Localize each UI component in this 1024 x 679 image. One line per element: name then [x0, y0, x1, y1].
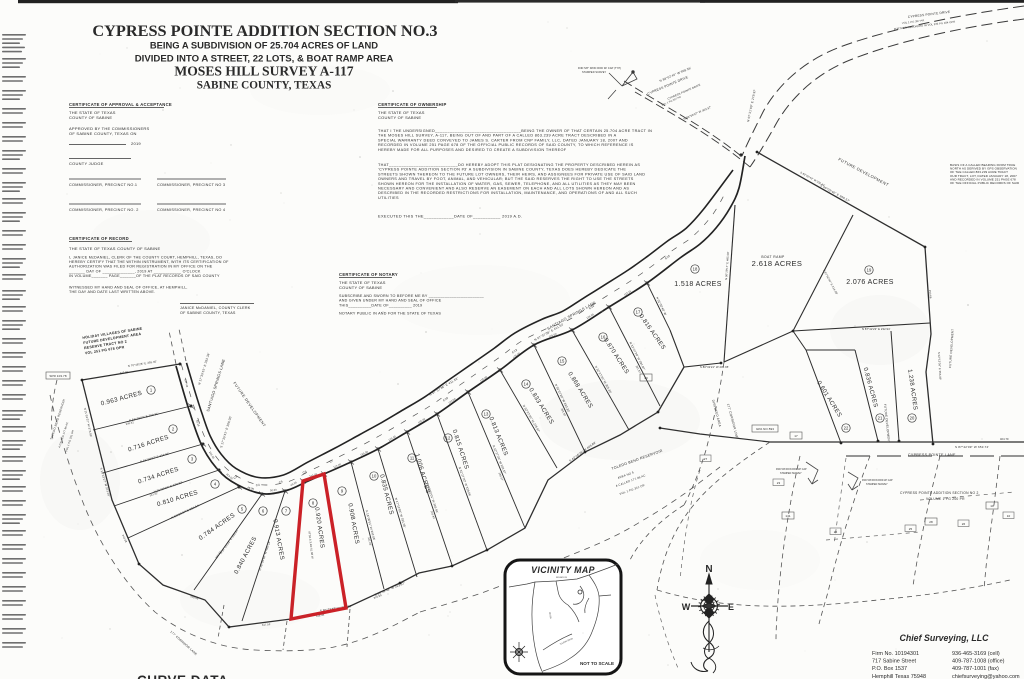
svg-text:14: 14 [524, 382, 529, 387]
svg-text:S 80°32'21" W 205.95': S 80°32'21" W 205.95' [700, 365, 729, 369]
svg-text:CYPRESS POINTE ADDITION SECTIO: CYPRESS POINTE ADDITION SECTION NO 2 [900, 491, 979, 495]
svg-text:Hemphill Texas 75948: Hemphill Texas 75948 [872, 674, 926, 679]
svg-text:936-465-3169 (cell): 936-465-3169 (cell) [952, 651, 1000, 657]
svg-text:CURVE DATA: CURVE DATA [137, 673, 228, 679]
svg-text:10: 10 [990, 504, 994, 508]
svg-text:STAMPED SURVEY: STAMPED SURVEY [866, 483, 888, 486]
svg-text:141: 141 [785, 514, 791, 518]
svg-text:COUNTY OF SABINE: COUNTY OF SABINE [339, 285, 382, 290]
svg-text:2019: 2019 [131, 141, 141, 146]
svg-text:SPECIAL WARRANTY DEED CONVEYED: SPECIAL WARRANTY DEED CONVEYED TO JAMES … [378, 138, 628, 142]
svg-text:250.66: 250.66 [928, 290, 933, 299]
svg-text:OF THE OFFICIAL PUBLIC RECORDS: OF THE OFFICIAL PUBLIC RECORDS OF SAID [950, 181, 1020, 185]
svg-text:P.O. Box 1537: P.O. Box 1537 [872, 666, 907, 672]
svg-text:COUNTY JUDGE: COUNTY JUDGE [69, 161, 104, 166]
svg-text:OF SABINE COUNTY, TEXAS: OF SABINE COUNTY, TEXAS [180, 311, 236, 315]
svg-text:IN VOLUME_______ PAGE_______OF: IN VOLUME_______ PAGE_______OF THE PLAT … [69, 274, 220, 278]
svg-text:15: 15 [560, 359, 565, 364]
svg-text:40: 40 [644, 376, 648, 380]
svg-text:BOAT RAMP: BOAT RAMP [761, 255, 785, 259]
svg-text:2.076 ACRES: 2.076 ACRES [846, 279, 894, 286]
svg-text:CYPRESS POINTE LANE: CYPRESS POINTE LANE [908, 453, 956, 457]
svg-text:UTILITIES: UTILITIES [378, 196, 399, 200]
svg-text:STAMPED SURVEY: STAMPED SURVEY [582, 71, 606, 74]
svg-text:SR HWY 83: SR HWY 83 [556, 577, 568, 579]
svg-text:OF SABINE COUNTY, TEXAS ON: OF SABINE COUNTY, TEXAS ON [69, 131, 137, 136]
svg-text:18: 18 [693, 267, 698, 272]
svg-text:CERTIFICATE OF NOTARY: CERTIFICATE OF NOTARY [339, 272, 398, 277]
svg-text:CERTIFICATE OF APPROVAL & ACCE: CERTIFICATE OF APPROVAL & ACCEPTANCE [69, 102, 172, 107]
svg-text:404.79: 404.79 [1000, 437, 1009, 441]
svg-text:SPR 103.78: SPR 103.78 [49, 374, 66, 378]
svg-text:JANICE McDANIEL, COUNTY CLERK: JANICE McDANIEL, COUNTY CLERK [180, 306, 251, 310]
svg-text:21: 21 [878, 416, 883, 421]
svg-text:FND 5/8 IRON ROD W/ CAP: FND 5/8 IRON ROD W/ CAP [776, 468, 807, 471]
svg-text:409-787-1001 (fax): 409-787-1001 (fax) [952, 666, 999, 672]
svg-text:20: 20 [910, 416, 915, 421]
svg-text:BEING A SUBDIVISION OF 25.704: BEING A SUBDIVISION OF 25.704 ACRES OF L… [150, 40, 378, 51]
svg-text:26: 26 [962, 522, 966, 526]
svg-text:W: W [682, 602, 691, 612]
svg-text:17: 17 [794, 434, 798, 438]
svg-text:24: 24 [834, 530, 838, 534]
svg-text:VICINITY MAP: VICINITY MAP [531, 565, 595, 575]
svg-text:11: 11 [410, 456, 415, 461]
svg-text:22: 22 [844, 426, 849, 431]
svg-text:WITNESSED MY HAND AND SEAL OF: WITNESSED MY HAND AND SEAL OF OFFICE, AT… [69, 286, 188, 290]
svg-text:THAT__________________________: THAT____________________________DO HEREB… [378, 163, 640, 167]
svg-text:1.518 ACRES: 1.518 ACRES [674, 281, 722, 288]
svg-text:'CYPRESS POINTE ADDITION SECTI: 'CYPRESS POINTE ADDITION SECTION #3' A S… [378, 168, 626, 172]
svg-text:CYPRESS POINTE ADDITION SECTIO: CYPRESS POINTE ADDITION SECTION NO.3 [92, 21, 437, 40]
svg-text:Firm No. 10194301: Firm No. 10194301 [872, 651, 919, 657]
svg-text:SHOWN HEREON FOR THE INSTALLAT: SHOWN HEREON FOR THE INSTALLATION OF WAT… [378, 182, 636, 186]
svg-text:chiefsurveying@yahoo.com: chiefsurveying@yahoo.com [952, 674, 1020, 679]
svg-text:16: 16 [601, 335, 606, 340]
svg-text:OWNERS AND TRAVEL BY FOOT, ANI: OWNERS AND TRAVEL BY FOOT, ANIMAL, AND V… [378, 177, 634, 181]
svg-text:STREETS SHOWN THEREON TO THE F: STREETS SHOWN THEREON TO THE FUTURE LOT … [378, 172, 645, 176]
svg-text:HEREBY MADE FOR ALL PURPOSES A: HEREBY MADE FOR ALL PURPOSES AND DESIRED… [378, 148, 567, 152]
svg-text:S 87°42'09" W 653.74': S 87°42'09" W 653.74' [955, 445, 989, 449]
svg-text:27: 27 [704, 457, 708, 461]
svg-text:COMMISSIONER, PRECINCT NO 3: COMMISSIONER, PRECINCT NO 3 [157, 183, 225, 187]
svg-text:2.618 ACRES: 2.618 ACRES [752, 259, 803, 268]
svg-text:13: 13 [484, 412, 489, 417]
svg-text:COUNTY OF SABINE: COUNTY OF SABINE [378, 115, 421, 120]
svg-text:GPA NO.593: GPA NO.593 [756, 427, 774, 431]
svg-text:19: 19 [867, 268, 872, 273]
svg-text:25: 25 [909, 527, 913, 531]
svg-text:Chief Surveying, LLC: Chief Surveying, LLC [900, 633, 990, 643]
svg-text:FND 5/8 IRON ROD W/ CAP: FND 5/8 IRON ROD W/ CAP [862, 479, 893, 482]
svg-text:THE DAY AND DATE LAST WRITTEN: THE DAY AND DATE LAST WRITTEN ABOVE. [69, 290, 155, 294]
svg-text:NOT TO SCALE: NOT TO SCALE [580, 661, 614, 666]
svg-text:CERTIFICATE OF OWNERSHIP: CERTIFICATE OF OWNERSHIP [378, 102, 447, 107]
svg-text:409-787-1008 (office): 409-787-1008 (office) [952, 659, 1005, 665]
svg-text:COMMISSIONER, PRECINCT NO.1: COMMISSIONER, PRECINCT NO.1 [69, 183, 137, 187]
svg-text:17: 17 [636, 310, 641, 315]
svg-text:EXECUTED THIS THE____________D: EXECUTED THIS THE____________DATE OF____… [378, 214, 522, 219]
svg-text:23: 23 [777, 481, 781, 485]
svg-text:12: 12 [446, 436, 451, 441]
svg-text:717 Sabine Street: 717 Sabine Street [872, 659, 917, 665]
svg-text:THAT I THE UNDERSIGNED________: THAT I THE UNDERSIGNED__________________… [378, 129, 652, 133]
svg-text:COUNTY OF SABINE: COUNTY OF SABINE [69, 115, 112, 120]
svg-text:FND 5/8" IRON ROD W/ CAP (TYP): FND 5/8" IRON ROD W/ CAP (TYP) [578, 67, 621, 70]
svg-text:STAMPED SURVEY: STAMPED SURVEY [780, 472, 802, 475]
svg-text:THE MOSES HILL SURVEY, A-117,: THE MOSES HILL SURVEY, A-117, BEING OUT … [378, 134, 617, 138]
svg-text:10: 10 [372, 474, 377, 479]
svg-text:DESCRIBED IN THE RECORDED REST: DESCRIBED IN THE RECORDED RESTRICTIONS F… [378, 191, 637, 195]
svg-text:RECORDED IN VOLUME 251 PAGE 67: RECORDED IN VOLUME 251 PAGE 678 OF THE O… [378, 143, 634, 147]
svg-text:E: E [728, 602, 734, 612]
svg-text:10: 10 [1007, 514, 1011, 518]
svg-text:_______ DAY OF ______________,: _______ DAY OF ______________, 2019 AT _… [68, 269, 201, 273]
svg-text:28: 28 [929, 520, 933, 524]
svg-text:NECESSARY AND CONVENIENT AND A: NECESSARY AND CONVENIENT AND ALSO RESERV… [378, 187, 629, 191]
svg-text:COMMISSIONER, PRECINCT NO. 2: COMMISSIONER, PRECINCT NO. 2 [69, 208, 139, 212]
